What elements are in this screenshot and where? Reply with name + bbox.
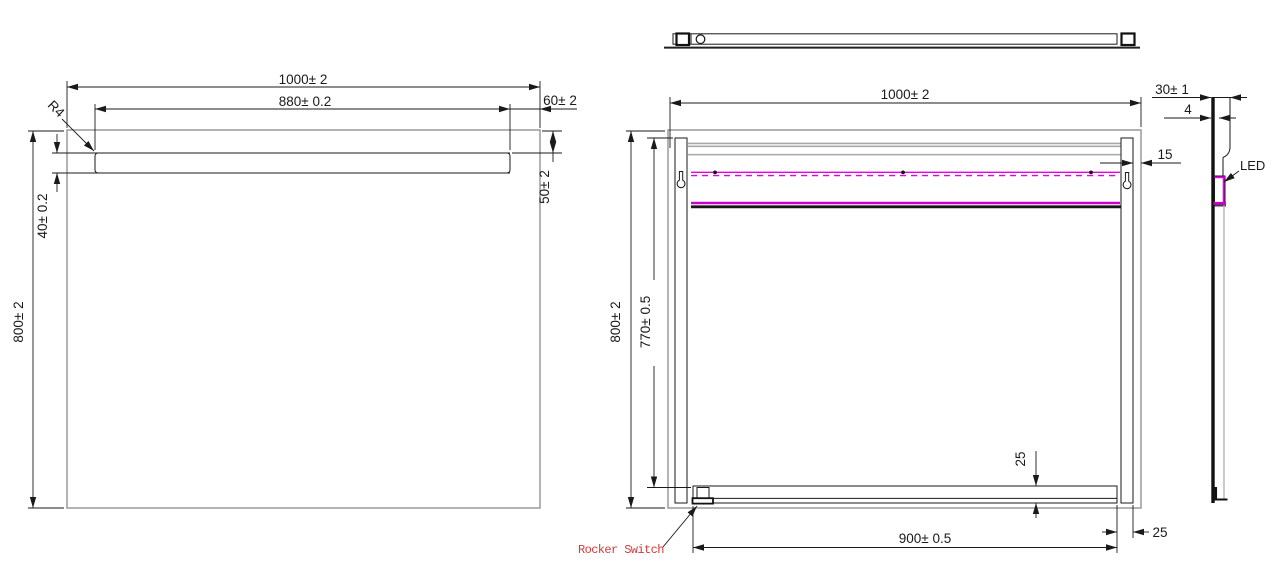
drawing-canvas: 1000± 2 880± 0.2 60± 2 50± 2 40± 0.2 800… bbox=[0, 0, 1273, 582]
dim-depth: 30± 1 bbox=[1155, 82, 1189, 97]
dim-right-gap: 60± 2 bbox=[543, 93, 577, 108]
led-dot bbox=[901, 171, 905, 175]
rocker-switch-label: Rocker Switch bbox=[578, 543, 664, 557]
top-view-bar bbox=[673, 34, 1117, 44]
led-label: LED bbox=[1240, 158, 1265, 173]
dim-bar-height: 25 bbox=[1013, 451, 1028, 466]
led-dot bbox=[1089, 171, 1093, 175]
side-frame-notch bbox=[1223, 147, 1230, 158]
back-mirror-outline bbox=[668, 130, 1141, 508]
dim-bracket-edge-gap: 15 bbox=[1157, 147, 1172, 162]
front-view: 1000± 2 880± 0.2 60± 2 50± 2 40± 0.2 800… bbox=[11, 72, 577, 508]
top-view bbox=[664, 34, 1140, 48]
dim-corner-radius: R4 bbox=[45, 97, 68, 120]
dim-glass-thickness: 4 bbox=[1184, 102, 1192, 117]
led-dot bbox=[713, 171, 717, 175]
dim-bar-length: 900± 0.5 bbox=[899, 531, 951, 546]
dim-strip-top-offset: 50± 2 bbox=[537, 170, 552, 204]
dim-bar-end-gap: 25 bbox=[1152, 525, 1167, 540]
front-mirror-outline bbox=[67, 130, 540, 508]
right-hanging-bracket bbox=[1121, 138, 1133, 503]
bottom-bar bbox=[693, 486, 1117, 503]
dim-strip-height: 40± 0.2 bbox=[35, 194, 50, 239]
engineering-drawing-page: 1000± 2 880± 0.2 60± 2 50± 2 40± 0.2 800… bbox=[0, 0, 1273, 582]
side-view: 30± 1 4 LED bbox=[1152, 82, 1265, 503]
rocker-switch-flange bbox=[693, 498, 714, 503]
dim-front-height: 800± 2 bbox=[11, 301, 26, 342]
frosted-strip-hatch bbox=[95, 153, 510, 173]
back-view: 1000± 2 800± 2 770± 0.5 15 25 25 900± 0.… bbox=[578, 87, 1181, 557]
keyhole-icon bbox=[1123, 173, 1131, 189]
top-view-right-bracket-end bbox=[1122, 34, 1135, 46]
dim-back-width: 1000± 2 bbox=[881, 87, 930, 102]
dim-frost-width: 880± 0.2 bbox=[279, 94, 331, 109]
top-view-switch-hole bbox=[696, 35, 705, 44]
led-leader bbox=[1224, 171, 1239, 182]
left-hanging-bracket bbox=[675, 138, 687, 503]
keyhole-icon bbox=[677, 172, 685, 188]
dim-bracket-span: 770± 0.5 bbox=[638, 296, 653, 348]
dim-front-width: 1000± 2 bbox=[279, 72, 328, 87]
rocker-switch-leader bbox=[663, 506, 697, 547]
top-view-left-bracket-end bbox=[677, 34, 690, 46]
dim-back-height: 800± 2 bbox=[608, 301, 623, 342]
rocker-switch-body bbox=[697, 488, 709, 499]
